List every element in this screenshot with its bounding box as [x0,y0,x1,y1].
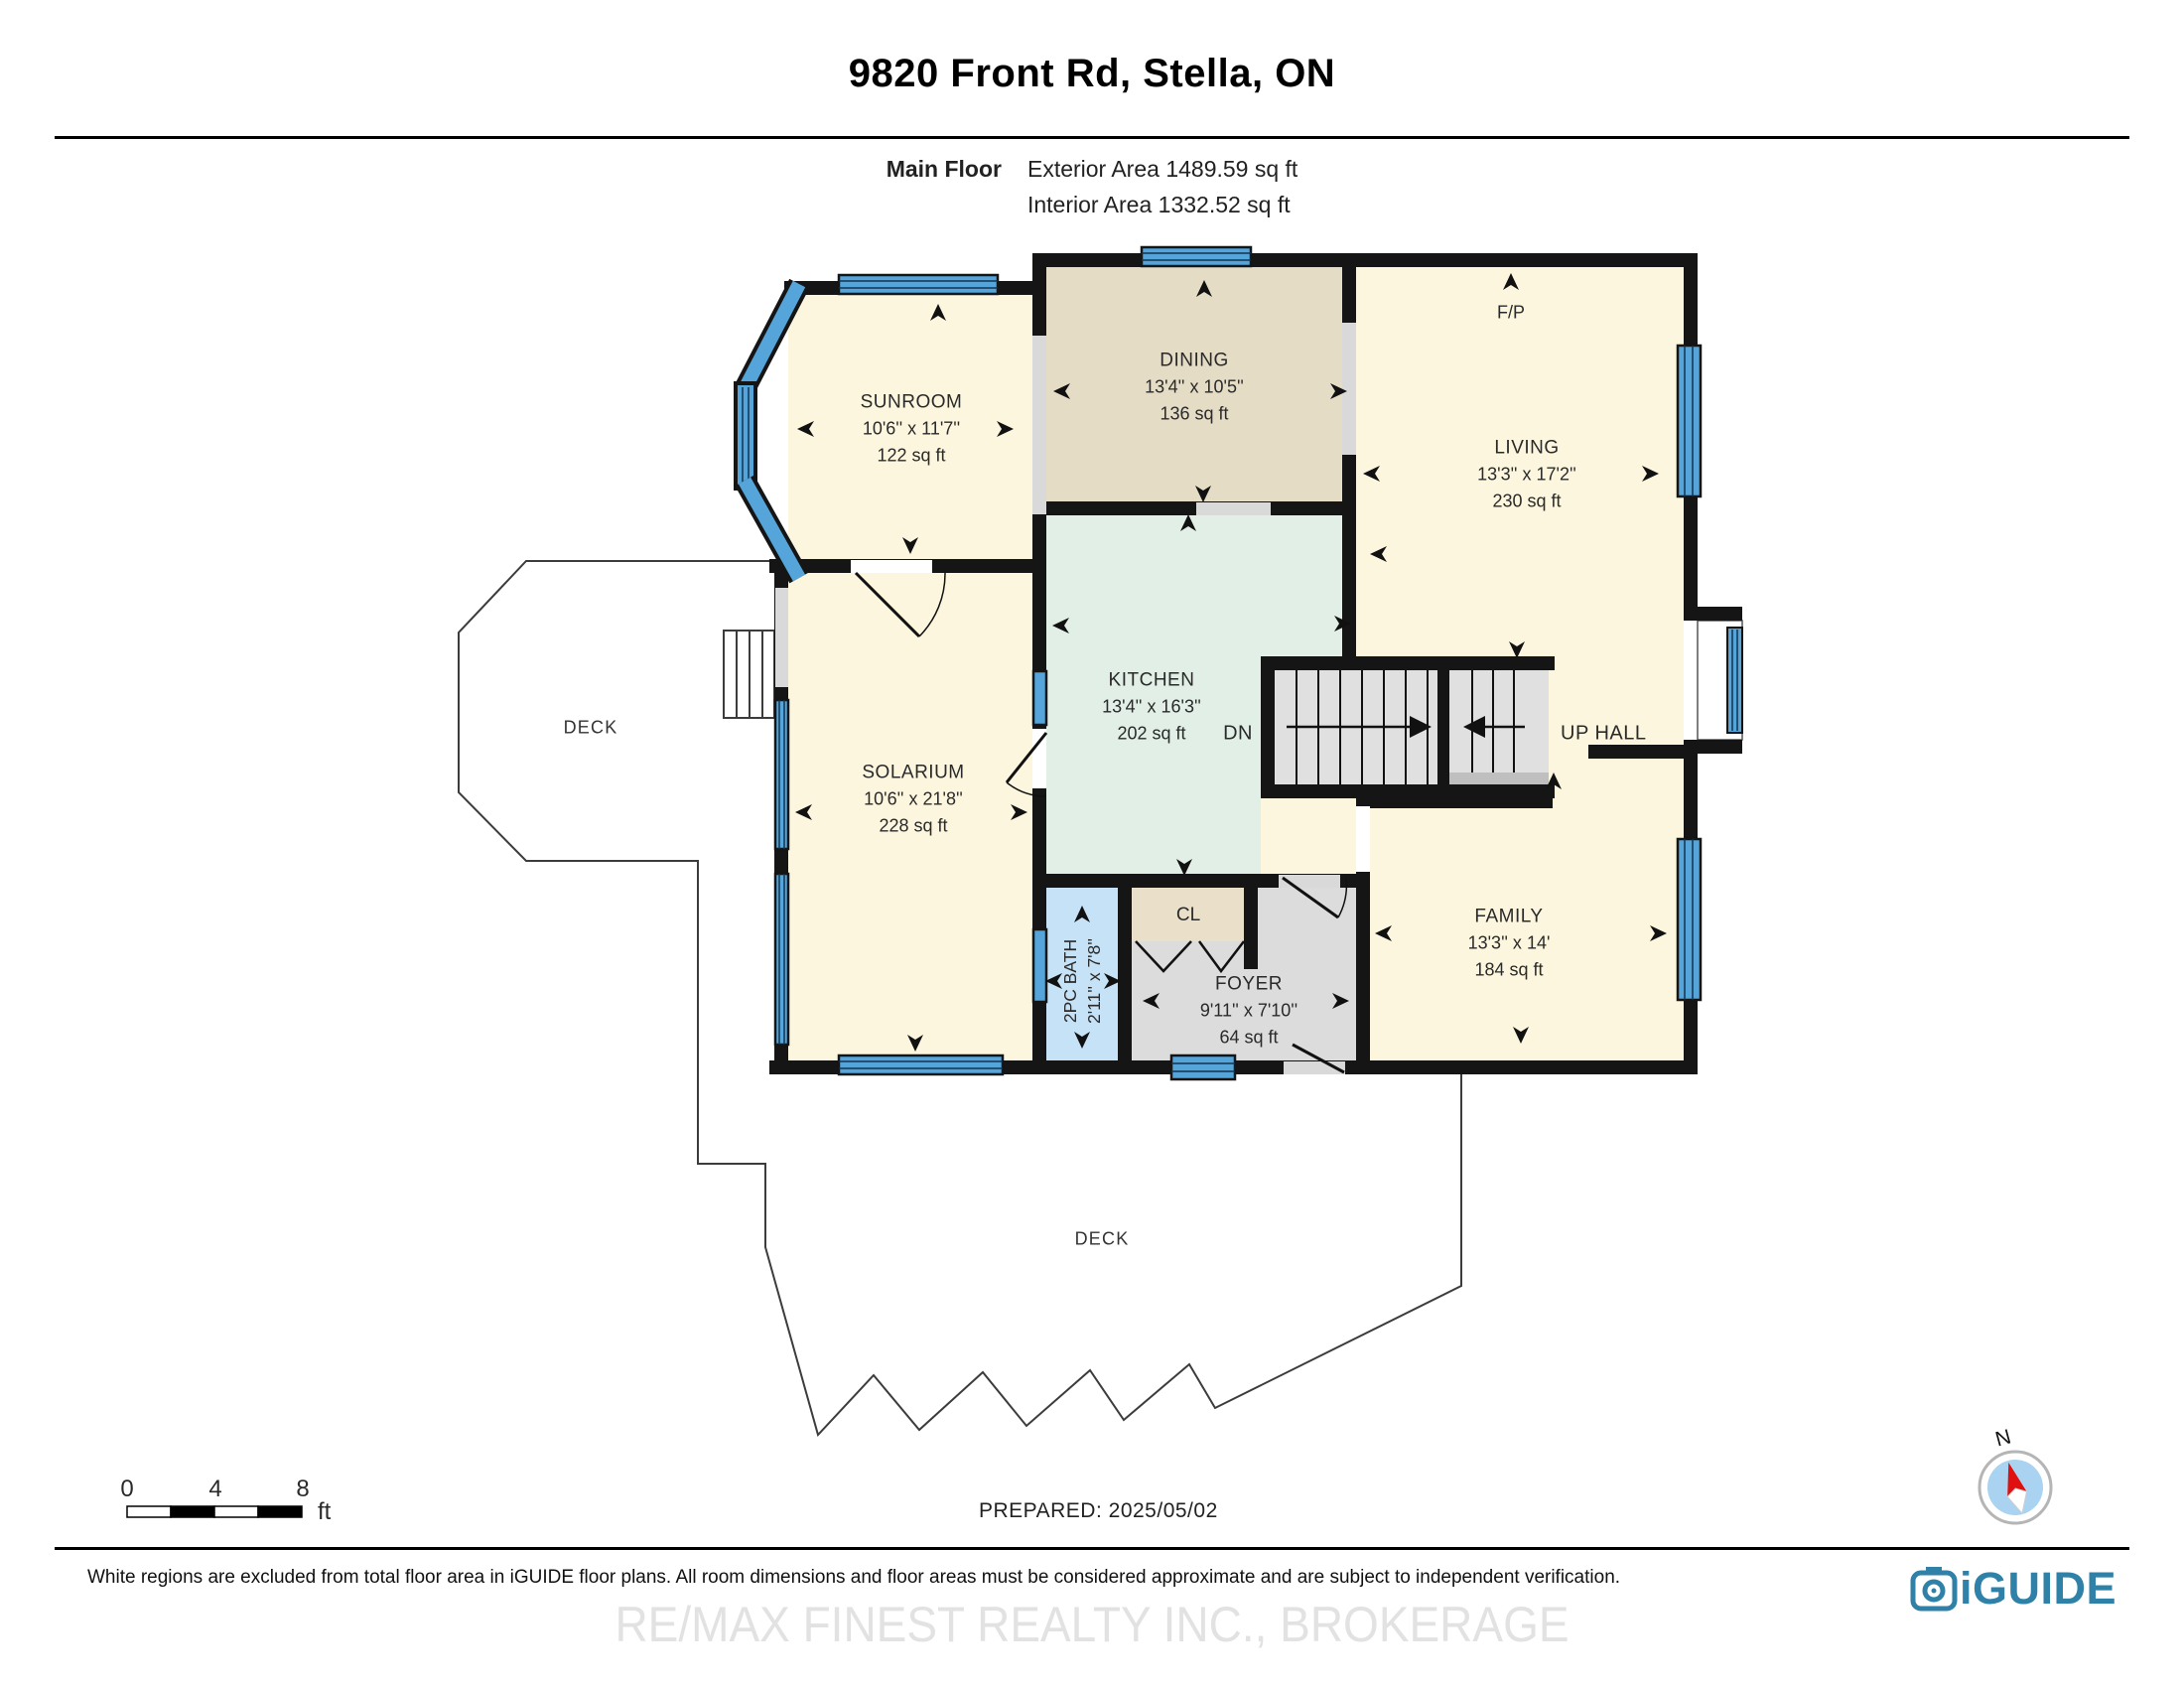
room-dims: 10'6'' x 21'8'' [862,786,964,813]
room-dims: 13'3'' x 14' [1468,930,1551,957]
area-info: Exterior Area 1489.59 sq ft Interior Are… [1027,151,1297,222]
interior-area: Interior Area 1332.52 sq ft [1027,187,1297,222]
iguide-logo-icon [1913,1567,1955,1609]
floor-plan-page: 9820 Front Rd, Stella, ON Main Floor Ext… [0,0,2184,1688]
room-dims: 10'6'' x 11'7'' [861,416,963,443]
room-name: SOLARIUM [862,760,964,786]
fireplace-label: F/P [1497,300,1525,327]
floor-info: Main Floor Exterior Area 1489.59 sq ft I… [887,151,1298,222]
room-label-dining: DINING 13'4'' x 10'5'' 136 sq ft [1145,348,1244,428]
room-label-foyer: FOYER 9'11'' x 7'10'' 64 sq ft [1200,971,1297,1052]
room-area: 230 sq ft [1477,489,1576,515]
brokerage-watermark: RE/MAX FINEST REALTY INC., BROKERAGE [614,1596,1569,1653]
room-area: 122 sq ft [861,443,963,470]
closet-label: CL [1176,905,1200,926]
deck-label-left: DECK [564,718,618,739]
box-window-bump [1691,607,1742,754]
room-name: DINING [1145,348,1244,374]
room-dims: 13'3'' x 17'2'' [1477,462,1576,489]
floor-label: Main Floor [887,151,1002,222]
room-dims: 13'4'' x 16'3'' [1102,694,1201,721]
room-dims: 9'11'' x 7'10'' [1200,998,1297,1025]
scale-tick-4: 4 [208,1476,221,1503]
room-label-living: LIVING 13'3'' x 17'2'' 230 sq ft [1477,435,1576,515]
scale-unit-label: ft [318,1498,331,1526]
room-name: 2PC BATH [1058,938,1082,1024]
room-label-solarium: SOLARIUM 10'6'' x 21'8'' 228 sq ft [862,760,964,840]
room-label-sunroom: SUNROOM 10'6'' x 11'7'' 122 sq ft [861,389,963,470]
staircase [1275,670,1549,784]
room-name: FOYER [1200,971,1297,998]
room-label-family: FAMILY 13'3'' x 14' 184 sq ft [1468,904,1551,984]
iguide-logo-text: iGUIDE [1960,1563,2116,1615]
stairs-down-label: DN [1223,723,1253,746]
prepared-date: PREPARED: 2025/05/02 [979,1499,1218,1523]
title-divider [55,136,2129,139]
room-label-bath: 2PC BATH 2'11'' x 7'8'' [1058,938,1106,1024]
exterior-area: Exterior Area 1489.59 sq ft [1027,151,1297,187]
room-area: 228 sq ft [862,813,964,840]
room-area: 202 sq ft [1102,721,1201,748]
room-name: KITCHEN [1102,667,1201,694]
floor-plan-drawing [0,0,2184,1688]
room-dims: 2'11'' x 7'8'' [1082,938,1106,1024]
room-area: 64 sq ft [1200,1025,1297,1052]
scale-bar-graphic [127,1506,302,1517]
room-name: SUNROOM [861,389,963,416]
room-dims: 13'4'' x 10'5'' [1145,374,1244,401]
deck-label-bottom: DECK [1075,1229,1130,1250]
scale-tick-8: 8 [296,1476,309,1503]
compass [1979,1452,2051,1523]
room-area: 184 sq ft [1468,957,1551,984]
up-hall-label: UP HALL [1561,723,1647,746]
room-name: LIVING [1477,435,1576,462]
scale-tick-0: 0 [120,1476,133,1503]
disclaimer-text: White regions are excluded from total fl… [87,1567,1620,1589]
footer-divider [55,1547,2129,1550]
room-name: FAMILY [1468,904,1551,930]
room-label-kitchen: KITCHEN 13'4'' x 16'3'' 202 sq ft [1102,667,1201,748]
page-title: 9820 Front Rd, Stella, ON [0,52,2184,96]
room-area: 136 sq ft [1145,401,1244,428]
